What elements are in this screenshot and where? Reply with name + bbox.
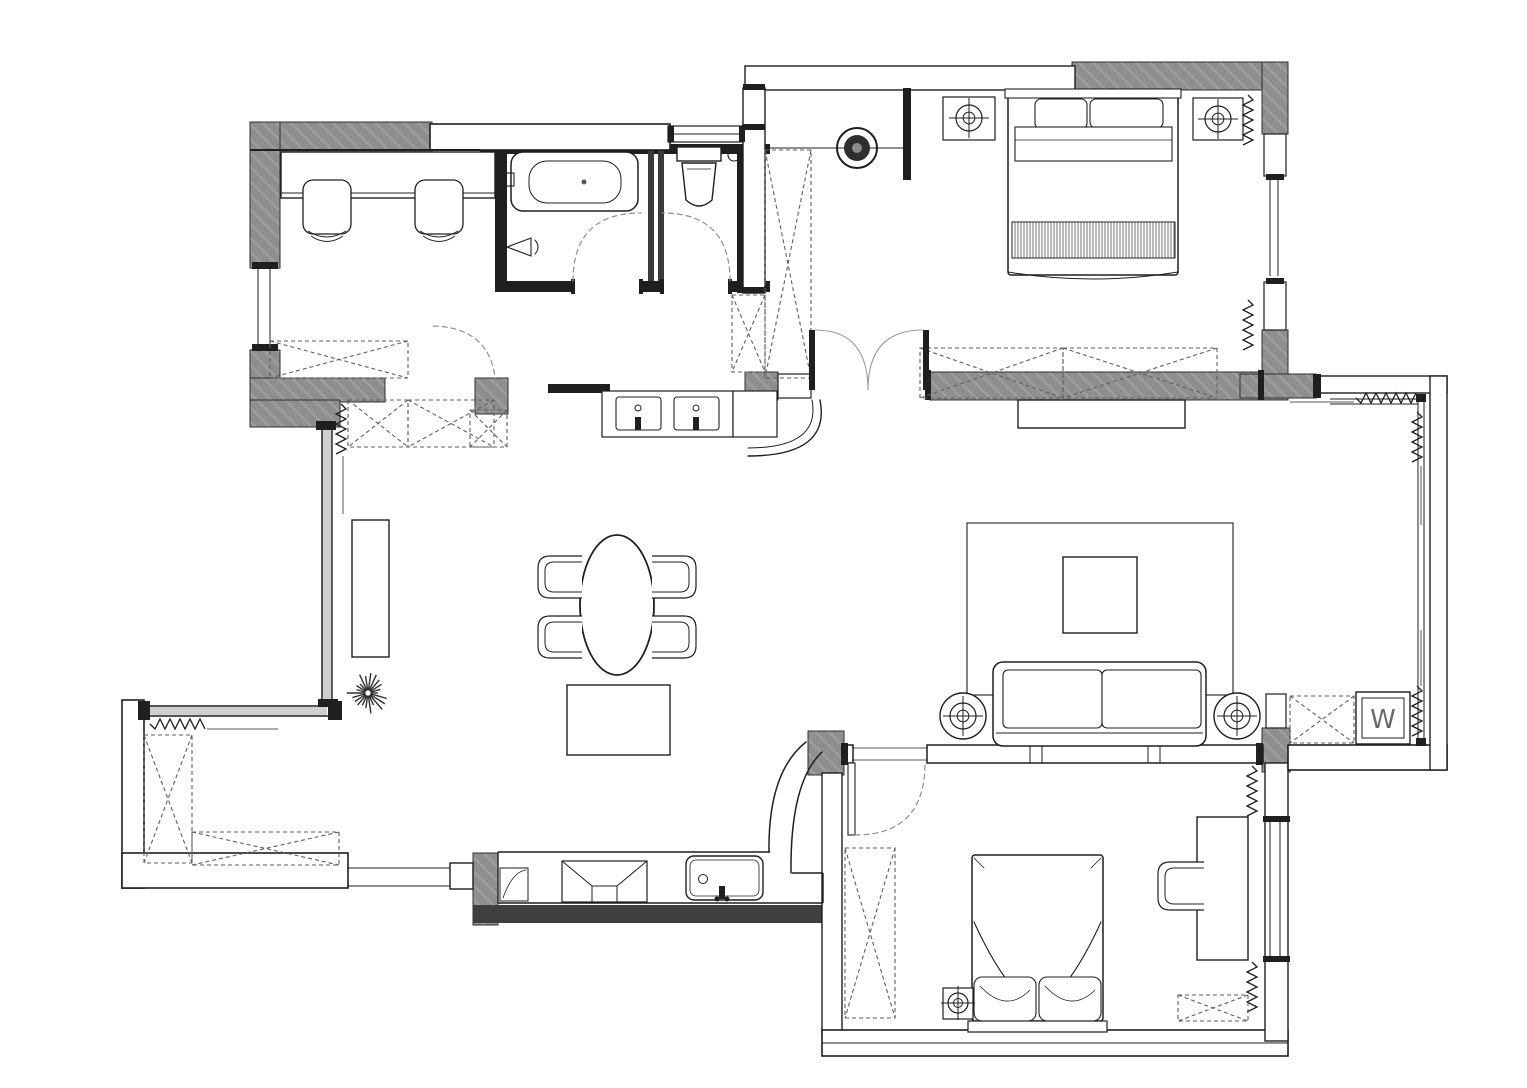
wall-balcony-stub: [1240, 374, 1316, 398]
wall-master-top-band: [745, 66, 1075, 90]
window-cap: [1263, 956, 1290, 962]
pillow: [974, 977, 1036, 1021]
window-cap: [743, 124, 765, 130]
curtain-zigzag: [1243, 300, 1253, 350]
desk-b2: [1197, 817, 1248, 960]
door-swing-master-left: [815, 330, 868, 390]
window-cap: [138, 701, 150, 720]
window-cap: [1258, 370, 1264, 400]
chair-study: [415, 180, 463, 234]
bed-b2-headboard: [968, 1021, 1107, 1032]
toilet-bowl: [682, 163, 716, 206]
ceiling-fan-hub: [852, 143, 862, 153]
wall-master-right-upper: [1262, 62, 1288, 134]
washer-label: W: [1370, 705, 1396, 735]
bed-master-headboard: [1005, 89, 1181, 98]
stove-hood-line: [562, 861, 592, 886]
wall-bath-partition-b: [658, 146, 664, 292]
wall-b2-left: [822, 773, 842, 1035]
bathtub-drain: [582, 180, 587, 185]
door-swing-master-right: [868, 330, 923, 390]
pillow: [1090, 99, 1163, 128]
curtain-zigzag: [1412, 412, 1422, 462]
vanity-end-block: [733, 391, 777, 437]
door-swing-b2: [855, 763, 925, 835]
door-leaf-b2: [848, 763, 855, 835]
wall-bath-bottom-left: [505, 281, 575, 292]
shower-spray: [535, 240, 538, 254]
curtain-zigzag: [1243, 95, 1253, 145]
wall-bath-left: [495, 150, 507, 292]
basin-faucet: [635, 417, 641, 430]
wall-living-bottom-b: [927, 745, 1263, 763]
window-cap: [316, 421, 336, 430]
headboard-screen: [903, 88, 911, 180]
cabinet-llbalcony: [144, 735, 192, 863]
sink-faucet-dot: [715, 897, 720, 902]
cabinet-balcony: [1290, 696, 1354, 743]
door-leaf-master-left: [809, 330, 815, 390]
window-cap: [1263, 816, 1290, 822]
basin-faucet: [693, 417, 699, 430]
window-cap: [1313, 374, 1321, 398]
cabinet-llbalcony: [144, 735, 192, 863]
wall-master-bottom: [930, 372, 1262, 400]
door-leaf-master-right: [923, 330, 929, 390]
wall-curve-kitchen-outer: [769, 742, 806, 852]
window-cap: [1266, 174, 1284, 180]
column-kitchen-right: [808, 731, 844, 775]
under-counter-unit: [500, 868, 528, 901]
window-cap: [328, 701, 342, 720]
sofa-cushion: [1003, 670, 1102, 728]
dining-table: [580, 535, 654, 675]
pillow: [1039, 977, 1101, 1021]
pillow: [1035, 99, 1087, 129]
door-leaf-study: [548, 384, 610, 393]
door-swing-wc: [662, 213, 730, 281]
wall-balcony-top: [1318, 376, 1447, 393]
door-swing-bath: [573, 213, 641, 281]
entry-step: [450, 863, 473, 889]
stove-inner: [592, 886, 617, 902]
window-cap: [1256, 743, 1263, 765]
wall-master-left: [743, 88, 765, 293]
wall-b2-right: [1265, 763, 1288, 1041]
sink-faucet-dot: [725, 897, 730, 902]
window-cap: [841, 743, 848, 765]
chair-study: [303, 180, 351, 234]
stove: [562, 861, 647, 902]
curtain-zigzag: [1412, 686, 1422, 736]
window-cap: [743, 84, 765, 90]
wall-study-bottom: [250, 378, 385, 402]
door-cap: [639, 279, 643, 294]
cabinet-llbalcony: [144, 735, 192, 863]
curtain-zigzag: [1356, 393, 1416, 403]
wall-master-right-mid2: [1264, 282, 1286, 330]
sofa-cushion: [1102, 670, 1201, 728]
wall-study-left-upper: [250, 122, 280, 268]
wall-washer-nook: [1266, 694, 1286, 728]
floor-plan-page: W: [0, 0, 1527, 1088]
bed-duvet-fold: [1015, 127, 1172, 161]
cabinet-balcony: [1290, 696, 1354, 743]
under-counter-door: [503, 870, 526, 898]
sink-faucet: [719, 886, 725, 899]
toilet-tank: [677, 147, 721, 161]
wall-top-cavity: [430, 124, 670, 150]
curtain-zigzag: [1247, 766, 1257, 816]
stove-hood-line: [617, 861, 647, 886]
door-cap: [660, 279, 664, 294]
wall-kitchen-bottom: [473, 905, 823, 923]
sideboard-dining: [567, 685, 670, 755]
wall-bath-partition-a: [648, 146, 654, 292]
curtain-zigzag: [150, 719, 205, 729]
shower-head: [507, 238, 531, 256]
wall-balcony-right: [1430, 376, 1447, 770]
cabinet-dining-tall: [352, 520, 389, 657]
wall-bath-bottom-mid: [641, 281, 662, 292]
cabinet-balcony: [1290, 696, 1354, 743]
floor-plan-drawing: W: [0, 0, 1527, 1088]
wall-balcony-bottom: [1288, 745, 1447, 770]
glazing-fill-llbalcony: [144, 707, 327, 715]
wall-master-right-mid1: [1264, 134, 1286, 176]
window-cap: [1266, 278, 1284, 284]
wall-master-top-right: [1072, 62, 1288, 90]
tv-console: [1018, 400, 1185, 428]
wall-llbalcony-bottom: [122, 853, 348, 888]
window-cap: [743, 287, 765, 293]
coffee-table: [1063, 557, 1137, 633]
wall-hall-block: [475, 378, 508, 414]
window-cap: [252, 344, 278, 351]
window-cap: [252, 262, 278, 269]
